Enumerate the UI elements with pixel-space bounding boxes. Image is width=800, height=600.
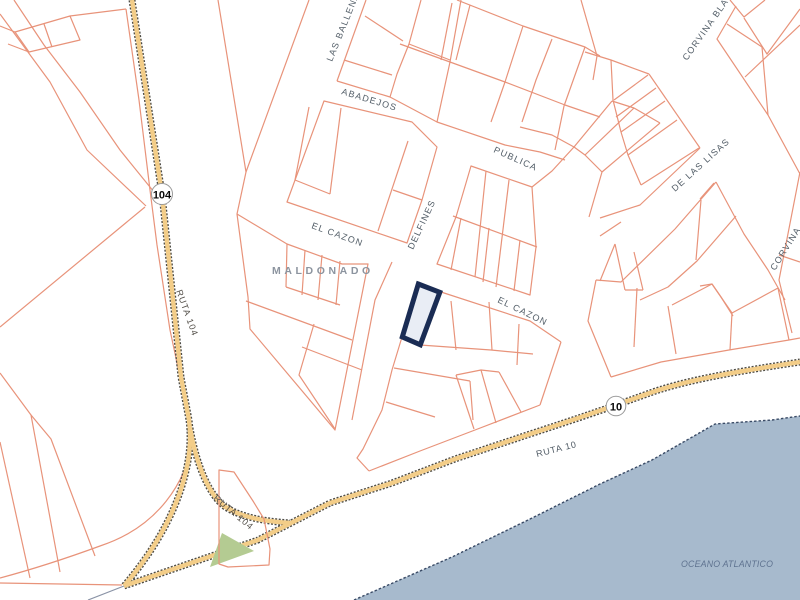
svg-text:MALDONADO: MALDONADO xyxy=(272,265,374,277)
svg-text:104: 104 xyxy=(153,190,172,202)
svg-text:OCEANO ATLANTICO: OCEANO ATLANTICO xyxy=(681,559,773,569)
svg-text:10: 10 xyxy=(610,402,622,414)
